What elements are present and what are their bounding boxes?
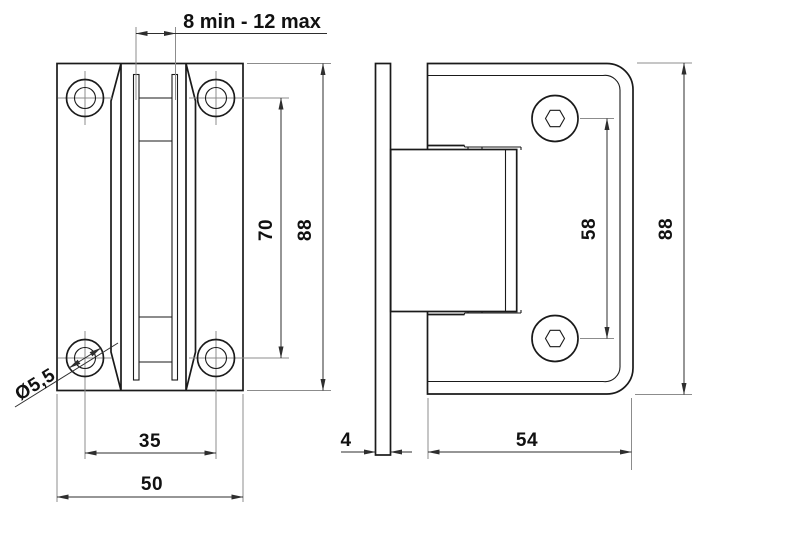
dim-label-4: 4 bbox=[340, 430, 351, 451]
dim-label-88-side: 88 bbox=[656, 218, 677, 240]
dim-label-70: 70 bbox=[256, 219, 277, 241]
dim-hole-pitch-vertical: 70 bbox=[240, 98, 289, 358]
clamp-bar-left bbox=[111, 64, 121, 391]
glass-pane-edge bbox=[376, 64, 391, 456]
dim-side-width: 54 bbox=[428, 398, 632, 470]
dim-side-height: 88 bbox=[635, 63, 692, 395]
front-view bbox=[57, 64, 243, 391]
clamp-bar-right bbox=[186, 64, 196, 391]
clamp-body-block bbox=[391, 150, 517, 312]
dim-label-58: 58 bbox=[579, 218, 600, 240]
side-view bbox=[376, 64, 634, 456]
glass-hinge-technical-drawing: 8 min - 12 max 70 88 35 50 Ø5,5 bbox=[0, 0, 790, 555]
dim-label-88-front: 88 bbox=[295, 219, 316, 241]
dim-label-glass-range: 8 min - 12 max bbox=[183, 11, 321, 33]
dim-label-hole-diameter: Ø5,5 bbox=[12, 365, 60, 406]
technical-drawing-page: 8 min - 12 max 70 88 35 50 Ø5,5 bbox=[0, 0, 790, 555]
dim-label-54: 54 bbox=[516, 430, 538, 451]
dim-label-35: 35 bbox=[139, 431, 161, 452]
dim-label-50: 50 bbox=[141, 474, 163, 495]
